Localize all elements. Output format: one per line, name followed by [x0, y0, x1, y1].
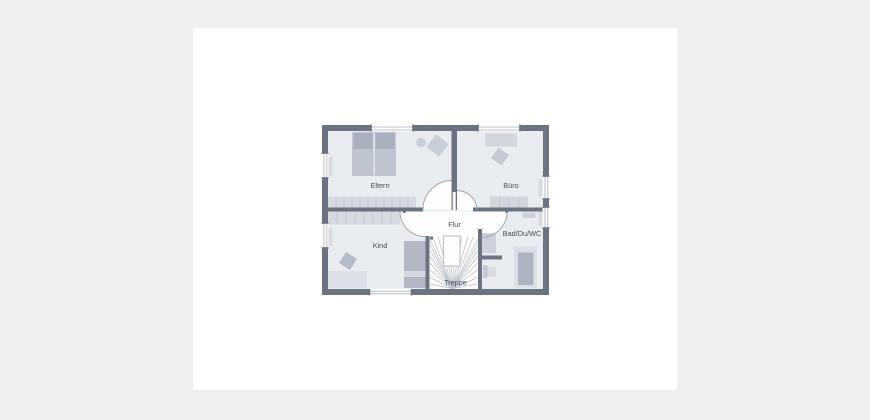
room-label-buero: Büro: [503, 181, 518, 190]
wall-bath-stub: [478, 256, 502, 260]
room-label-treppe: Treppe: [444, 278, 467, 287]
wardrobe-eltern: [328, 197, 416, 208]
wall-horizontal-left: [328, 208, 423, 212]
wall-exterior-left: [322, 125, 328, 295]
pillow-right: [376, 133, 395, 149]
radiator-bad: [523, 213, 536, 219]
window-left-2: [322, 222, 329, 248]
room-label-eltern: Eltern: [370, 181, 389, 190]
door-leaf-slot: [453, 192, 456, 210]
stair-walkline-marker: [430, 237, 433, 240]
door-jamb-kind: [403, 208, 406, 214]
wc-bowl: [488, 267, 497, 277]
radiator-eltern: [329, 157, 333, 176]
window-top-1: [370, 125, 413, 132]
window-right-1: [543, 175, 550, 199]
desk-buero: [485, 134, 517, 147]
radiator-bad-wall: [539, 211, 543, 226]
wall-exterior-bottom: [322, 289, 549, 295]
pillow-left: [354, 133, 373, 149]
stool: [416, 138, 426, 148]
floor-plan: Eltern Büro Flur Kind Bad/Du/WC Treppe: [0, 0, 870, 420]
radiator-buero: [539, 179, 543, 197]
window-top-2: [477, 125, 520, 132]
radiator-kind: [329, 228, 333, 246]
bathtub-inner: [518, 253, 534, 286]
room-label-bad: Bad/Du/WC: [503, 229, 542, 238]
desk-kind: [328, 271, 367, 288]
stair-landing: [444, 236, 461, 266]
wall-stairs-left: [426, 236, 430, 289]
window-left-1: [322, 152, 329, 178]
window-bottom: [369, 289, 412, 296]
wc-cistern: [483, 265, 488, 278]
room-label-kind: Kind: [373, 241, 388, 250]
room-label-flur: Flur: [448, 220, 461, 229]
tall-wardrobe-kind: [404, 241, 426, 288]
tall-wardrobe-kind-shelf: [404, 271, 426, 277]
window-right-2: [543, 206, 550, 228]
